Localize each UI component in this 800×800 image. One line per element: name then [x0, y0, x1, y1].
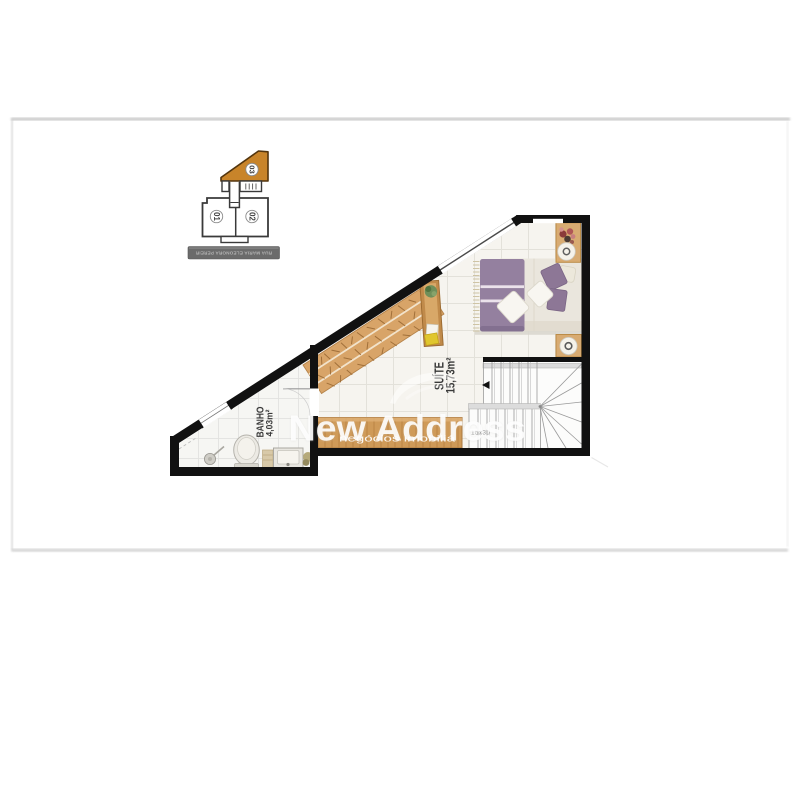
svg-text:02: 02: [248, 212, 257, 221]
svg-text:01: 01: [212, 212, 221, 221]
svg-text:negócios imobiliá: negócios imobiliá: [339, 434, 455, 444]
svg-text:03: 03: [248, 165, 257, 173]
svg-text:RUA MARIA ELEONORA PEREIR: RUA MARIA ELEONORA PEREIR: [195, 250, 272, 255]
svg-text:4,03m²: 4,03m²: [265, 410, 276, 437]
